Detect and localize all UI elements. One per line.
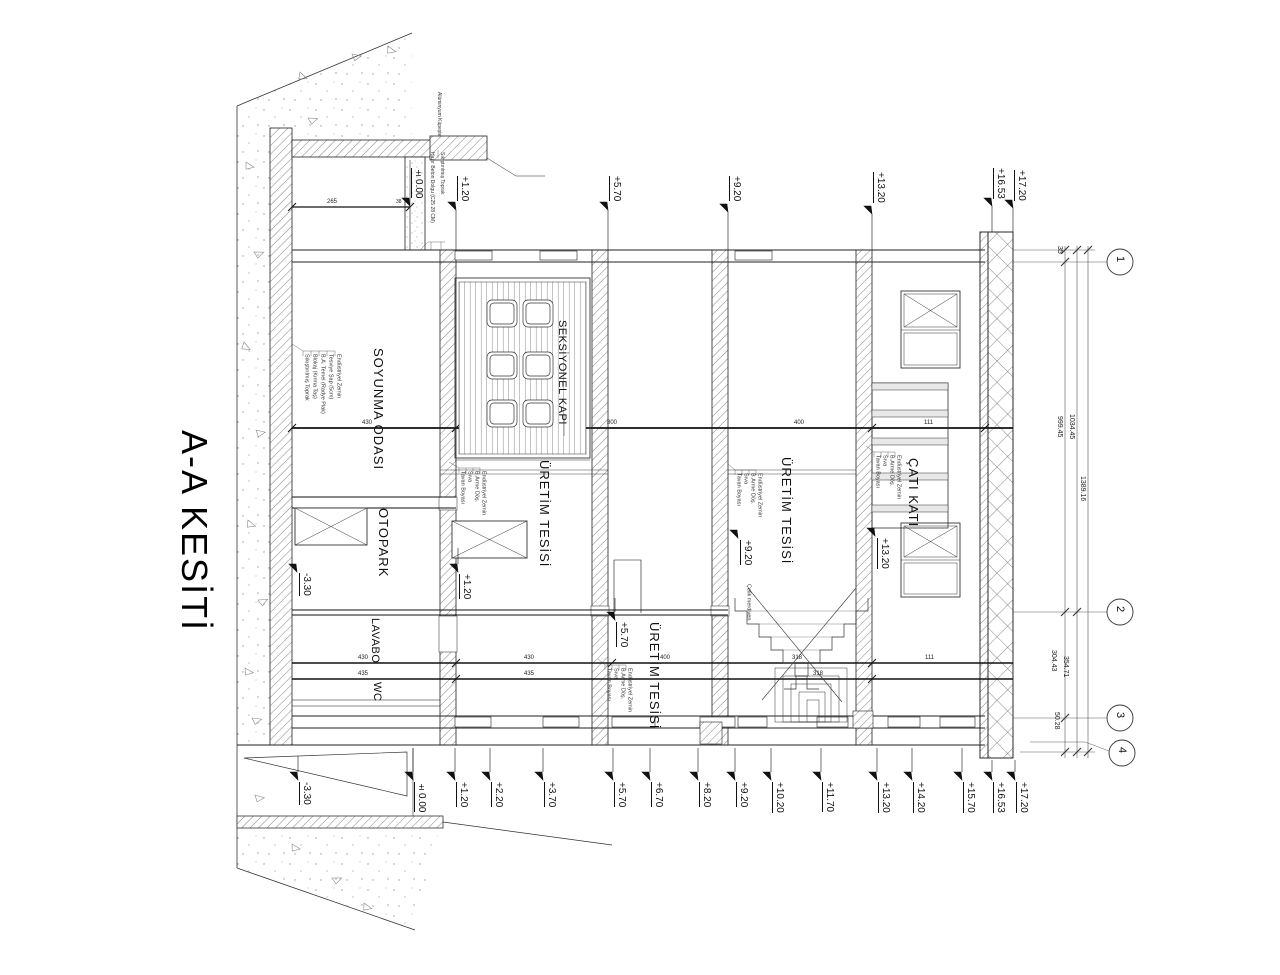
grid-axis-2: 2 [1114, 606, 1125, 612]
level-top-4: +13.20 [873, 172, 885, 203]
note-toprak: Sıkıştırılmış Toprak [439, 152, 444, 194]
dim-low1-3: 318 [792, 655, 802, 661]
level-inner-1: +1.20 [459, 574, 471, 599]
level-top-0: ±0.00 [411, 168, 423, 198]
dim-low1-1: 430 [524, 655, 534, 661]
level-bottom-0: -3.30 [299, 782, 311, 805]
dim-right-999: 999.45 [1056, 416, 1063, 437]
level-inner-4: +13.20 [877, 538, 889, 569]
dim-right-354: 354.71 [1062, 656, 1069, 677]
level-top-5: +16.53 [993, 168, 1005, 199]
layer-note: Endüstriyel Zemin [626, 668, 632, 712]
room-label-lavabo: LAVABO [369, 618, 380, 663]
grid-bubbles [1107, 249, 1135, 766]
level-inner-0: -3.30 [299, 573, 311, 596]
level-bottom-10: +11.70 [822, 782, 834, 812]
dim-right-35: 35 [1056, 246, 1063, 254]
room-label-cati-kati: ÇATI KATI [907, 458, 920, 527]
level-bottom-9: +10.20 [772, 782, 784, 813]
dim-low2-2: 318 [813, 671, 823, 677]
room-label-uretim-3: ÜRETİM TESİSİ [648, 622, 661, 729]
level-bottom-5: +5.70 [614, 782, 626, 807]
level-bottom-8: +9.20 [736, 782, 748, 807]
dim-base-265: 265 [327, 199, 337, 205]
layer-note: B.A. Temel (Radye Plak) [319, 354, 325, 414]
dim-right-1034: 1034.45 [1068, 414, 1075, 439]
level-bottom-3: +2.20 [491, 782, 503, 807]
dim-low1-4: 111 [925, 655, 934, 661]
room-label-seksiyonel-kapi: SEKSİYONEL KAPI [556, 320, 567, 425]
room-label-wc: WC [371, 682, 382, 701]
layer-note: Tavan Boyası [605, 668, 611, 701]
grid-axis-4: 4 [1116, 747, 1127, 753]
layer-note: Endüstriyel Zemin [480, 471, 486, 515]
note-merdiven: Çelik merdiven [745, 584, 751, 620]
layer-note: Endüstriyel Zemin [756, 473, 762, 517]
level-bottom-11: +13.20 [878, 782, 890, 813]
level-bottom-1: ±0.00 [414, 782, 426, 812]
level-inner-3: +9.20 [740, 540, 752, 565]
beam-sections [295, 508, 527, 558]
dim-mid-0: 430 [362, 420, 372, 426]
layer-note: Sıva [466, 471, 472, 482]
sectional-door [455, 278, 590, 460]
dim-mid-1: 800 [607, 420, 617, 426]
note-beton: Hazır Beton Dolgu (C25 28 CM) [429, 152, 434, 223]
layer-note: B.Arme Döş. [473, 471, 479, 502]
level-bottom-6: +6.70 [651, 782, 663, 807]
layer-note: Blokaj (Kırma Taş) [311, 354, 317, 399]
note-kupeste: Alüminyum Küpeşte [436, 92, 441, 136]
dim-right-50: 50.28 [1053, 712, 1060, 730]
level-top-3: +9.20 [729, 176, 741, 201]
dim-mid-2: 400 [794, 420, 804, 426]
layer-note: Sıva [881, 455, 887, 466]
dim-base-38: 38 [396, 200, 402, 205]
level-bottom-2: +1.20 [456, 782, 468, 807]
room-label-uretim-2: ÜRETİM TESİSİ [780, 457, 793, 564]
layer-note: Sıva [742, 473, 748, 484]
room-label-otopark: OTOPARK [377, 508, 390, 577]
level-bottom-12: +14.20 [913, 782, 925, 813]
dim-low1-2: 400 [660, 655, 670, 661]
level-bottom-7: +8.20 [699, 782, 711, 807]
dim-low2-0: 435 [358, 671, 368, 677]
room-label-uretim-1: ÜRETİM TESİSİ [538, 460, 551, 567]
dim-mid-3: 111 [924, 420, 933, 426]
layer-note: Endüstriyel Zemin [895, 455, 901, 499]
layer-note: Sıkıştırılmış Toprak [303, 354, 309, 401]
layer-note: Endüstriyel Zemin [335, 354, 341, 398]
level-bottom-15: +17.20 [1016, 782, 1028, 813]
level-top-2: +5.70 [609, 176, 621, 201]
layer-note: Tesviye Şap (5cm) [327, 354, 333, 399]
layer-note: B.Arme Döş. [888, 455, 894, 486]
dim-right-1389: 1389.16 [1079, 476, 1086, 501]
layer-note: Tavan Boyası [735, 473, 741, 506]
level-top-6: +17.20 [1014, 170, 1026, 201]
level-inner-2: +5.70 [616, 622, 628, 647]
room-label-soyunma: SOYUNMA ODASI [372, 348, 385, 470]
dimension-system [1013, 246, 1135, 766]
layer-note: B.Arme Döş. [749, 473, 755, 504]
section-drawing-sheet: A-A KESİTİ SOYUNMA ODASI OTOPARK LAVABO … [0, 0, 1280, 975]
dim-right-304: 304.43 [1050, 650, 1057, 671]
level-bottom-13: +15.70 [963, 782, 975, 813]
grid-axis-3: 3 [1114, 712, 1125, 718]
drawing-title: A-A KESİTİ [176, 430, 212, 632]
level-top-1: +1.20 [457, 176, 469, 201]
level-bottom-14: +16.53 [993, 782, 1005, 813]
layer-note: Tavan Boyası [459, 471, 465, 504]
dim-low2-1: 435 [524, 671, 534, 677]
layer-note: Tavan Boyası [874, 455, 880, 488]
dim-low1-0: 430 [358, 655, 368, 661]
layer-note: B.Arme Döş. [619, 668, 625, 699]
grid-axis-1: 1 [1114, 256, 1125, 262]
layer-note: Sıva [612, 668, 618, 679]
level-bottom-4: +3.70 [544, 782, 556, 807]
